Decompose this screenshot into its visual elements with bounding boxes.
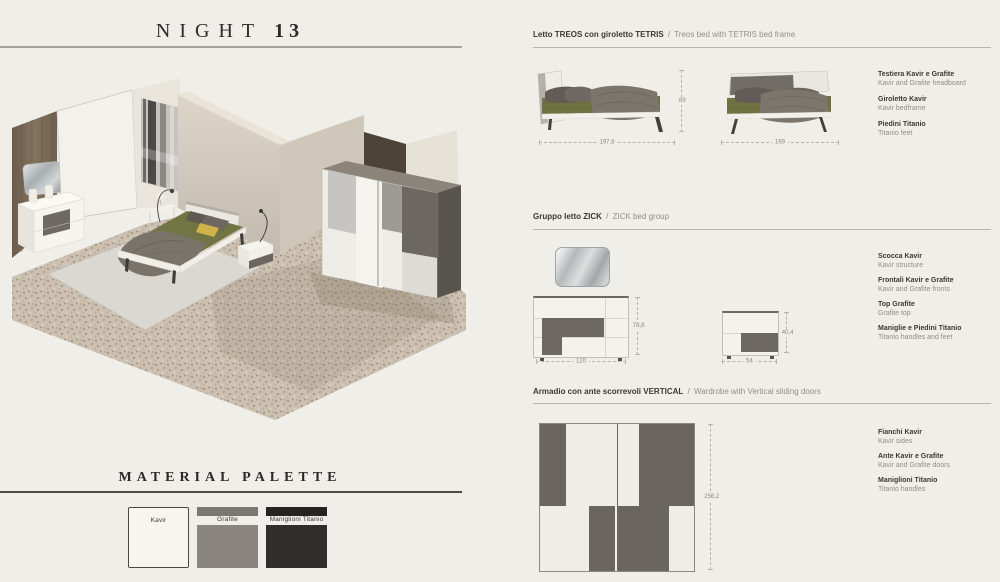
dim-bed-side-width: 197,8 (539, 142, 675, 143)
section-zick-title-en: ZICK bed group (613, 212, 669, 221)
label-doors: Ante Kavir e Grafite Kavir and Grafite d… (878, 452, 998, 470)
swatch-grafite-label: Grafite (197, 516, 258, 523)
swatch-titanio-label: Maniglioni Titanio (266, 516, 327, 523)
dim-wardrobe-height: 256,2 (710, 424, 711, 570)
dim-bed-height: 89 (681, 70, 682, 132)
label-handles: Maniglioni Titanio Titanio handles (878, 476, 998, 494)
section-treos-divider (533, 47, 991, 48)
bedroom-render-illustration (10, 62, 470, 464)
dim-bed-front-width: 169 (721, 142, 839, 143)
section-vertical-header: Armadio con ante scorrevoli VERTICAL / W… (533, 387, 993, 397)
section-zick-divider (533, 229, 991, 230)
dim-nightstand-height: 40,4 (786, 312, 787, 353)
swatch-kavir: Kavir (128, 507, 189, 568)
label-top: Top Grafite Grafite top (878, 300, 998, 318)
collection-number: 13 (274, 20, 304, 42)
bed-side-view-drawing (535, 70, 675, 136)
label-fronts: Frontali Kavir e Grafite Kavir and Grafi… (878, 276, 998, 294)
swatch-grafite (197, 525, 258, 568)
section-zick-header: Gruppo letto ZICK / ZICK bed group (533, 212, 993, 222)
section-vertical-title-en: Wardrobe with Vertical sliding doors (694, 387, 821, 396)
section-vertical-labels: Fianchi Kavir Kavir sides Ante Kavir e G… (878, 428, 998, 494)
nightstand-drawing (722, 311, 779, 356)
section-treos-labels: Testiera Kavir e Grafite Kavir and Grafi… (878, 70, 998, 138)
header-separator: / (606, 212, 608, 221)
section-treos-title-it: Letto TREOS con giroletto TETRIS (533, 30, 664, 39)
label-feet: Piedini Titanio Titanio feet (878, 120, 998, 138)
section-vertical-title-it: Armadio con ante scorrevoli VERTICAL (533, 387, 683, 396)
section-treos-header: Letto TREOS con giroletto TETRIS / Treos… (533, 30, 993, 40)
dim-dresser-height: 78,8 (637, 297, 638, 355)
label-bedframe: Giroletto Kavir Kavir bedframe (878, 95, 998, 113)
swatch-titanio-bar (266, 507, 327, 516)
mirror-drawing (555, 247, 610, 287)
wardrobe-drawing (539, 423, 695, 572)
bed-front-view-drawing (723, 70, 835, 136)
label-sides: Fianchi Kavir Kavir sides (878, 428, 998, 446)
label-handles-feet: Maniglie e Piedini Titanio Titanio handl… (878, 324, 998, 342)
section-zick-title-it: Gruppo letto ZICK (533, 212, 602, 221)
catalog-page: { "ui": { "sep": "/" }, "title": { "text… (0, 0, 1000, 582)
label-structure: Scocca Kavir Kavir structure (878, 252, 998, 270)
swatch-titanio (266, 525, 327, 568)
page-title: NIGHT 13 (0, 20, 460, 43)
section-treos-title-en: Treos bed with TETRIS bed frame (674, 30, 795, 39)
material-palette-divider (0, 491, 462, 493)
label-headboard: Testiera Kavir e Grafite Kavir and Grafi… (878, 70, 998, 88)
title-divider (0, 46, 462, 48)
header-separator: / (668, 30, 670, 39)
material-palette-heading: MATERIAL PALETTE (0, 470, 460, 486)
section-vertical-divider (533, 403, 991, 404)
dim-dresser-width: 120 (536, 361, 626, 362)
dresser-drawing (533, 296, 629, 358)
dim-nightstand-width: 54 (722, 361, 777, 362)
swatch-kavir-label: Kavir (129, 517, 188, 524)
collection-name: NIGHT (156, 20, 263, 42)
section-zick-labels: Scocca Kavir Kavir structure Frontali Ka… (878, 252, 998, 342)
header-separator: / (688, 387, 690, 396)
swatch-grafite-bar (197, 507, 258, 516)
